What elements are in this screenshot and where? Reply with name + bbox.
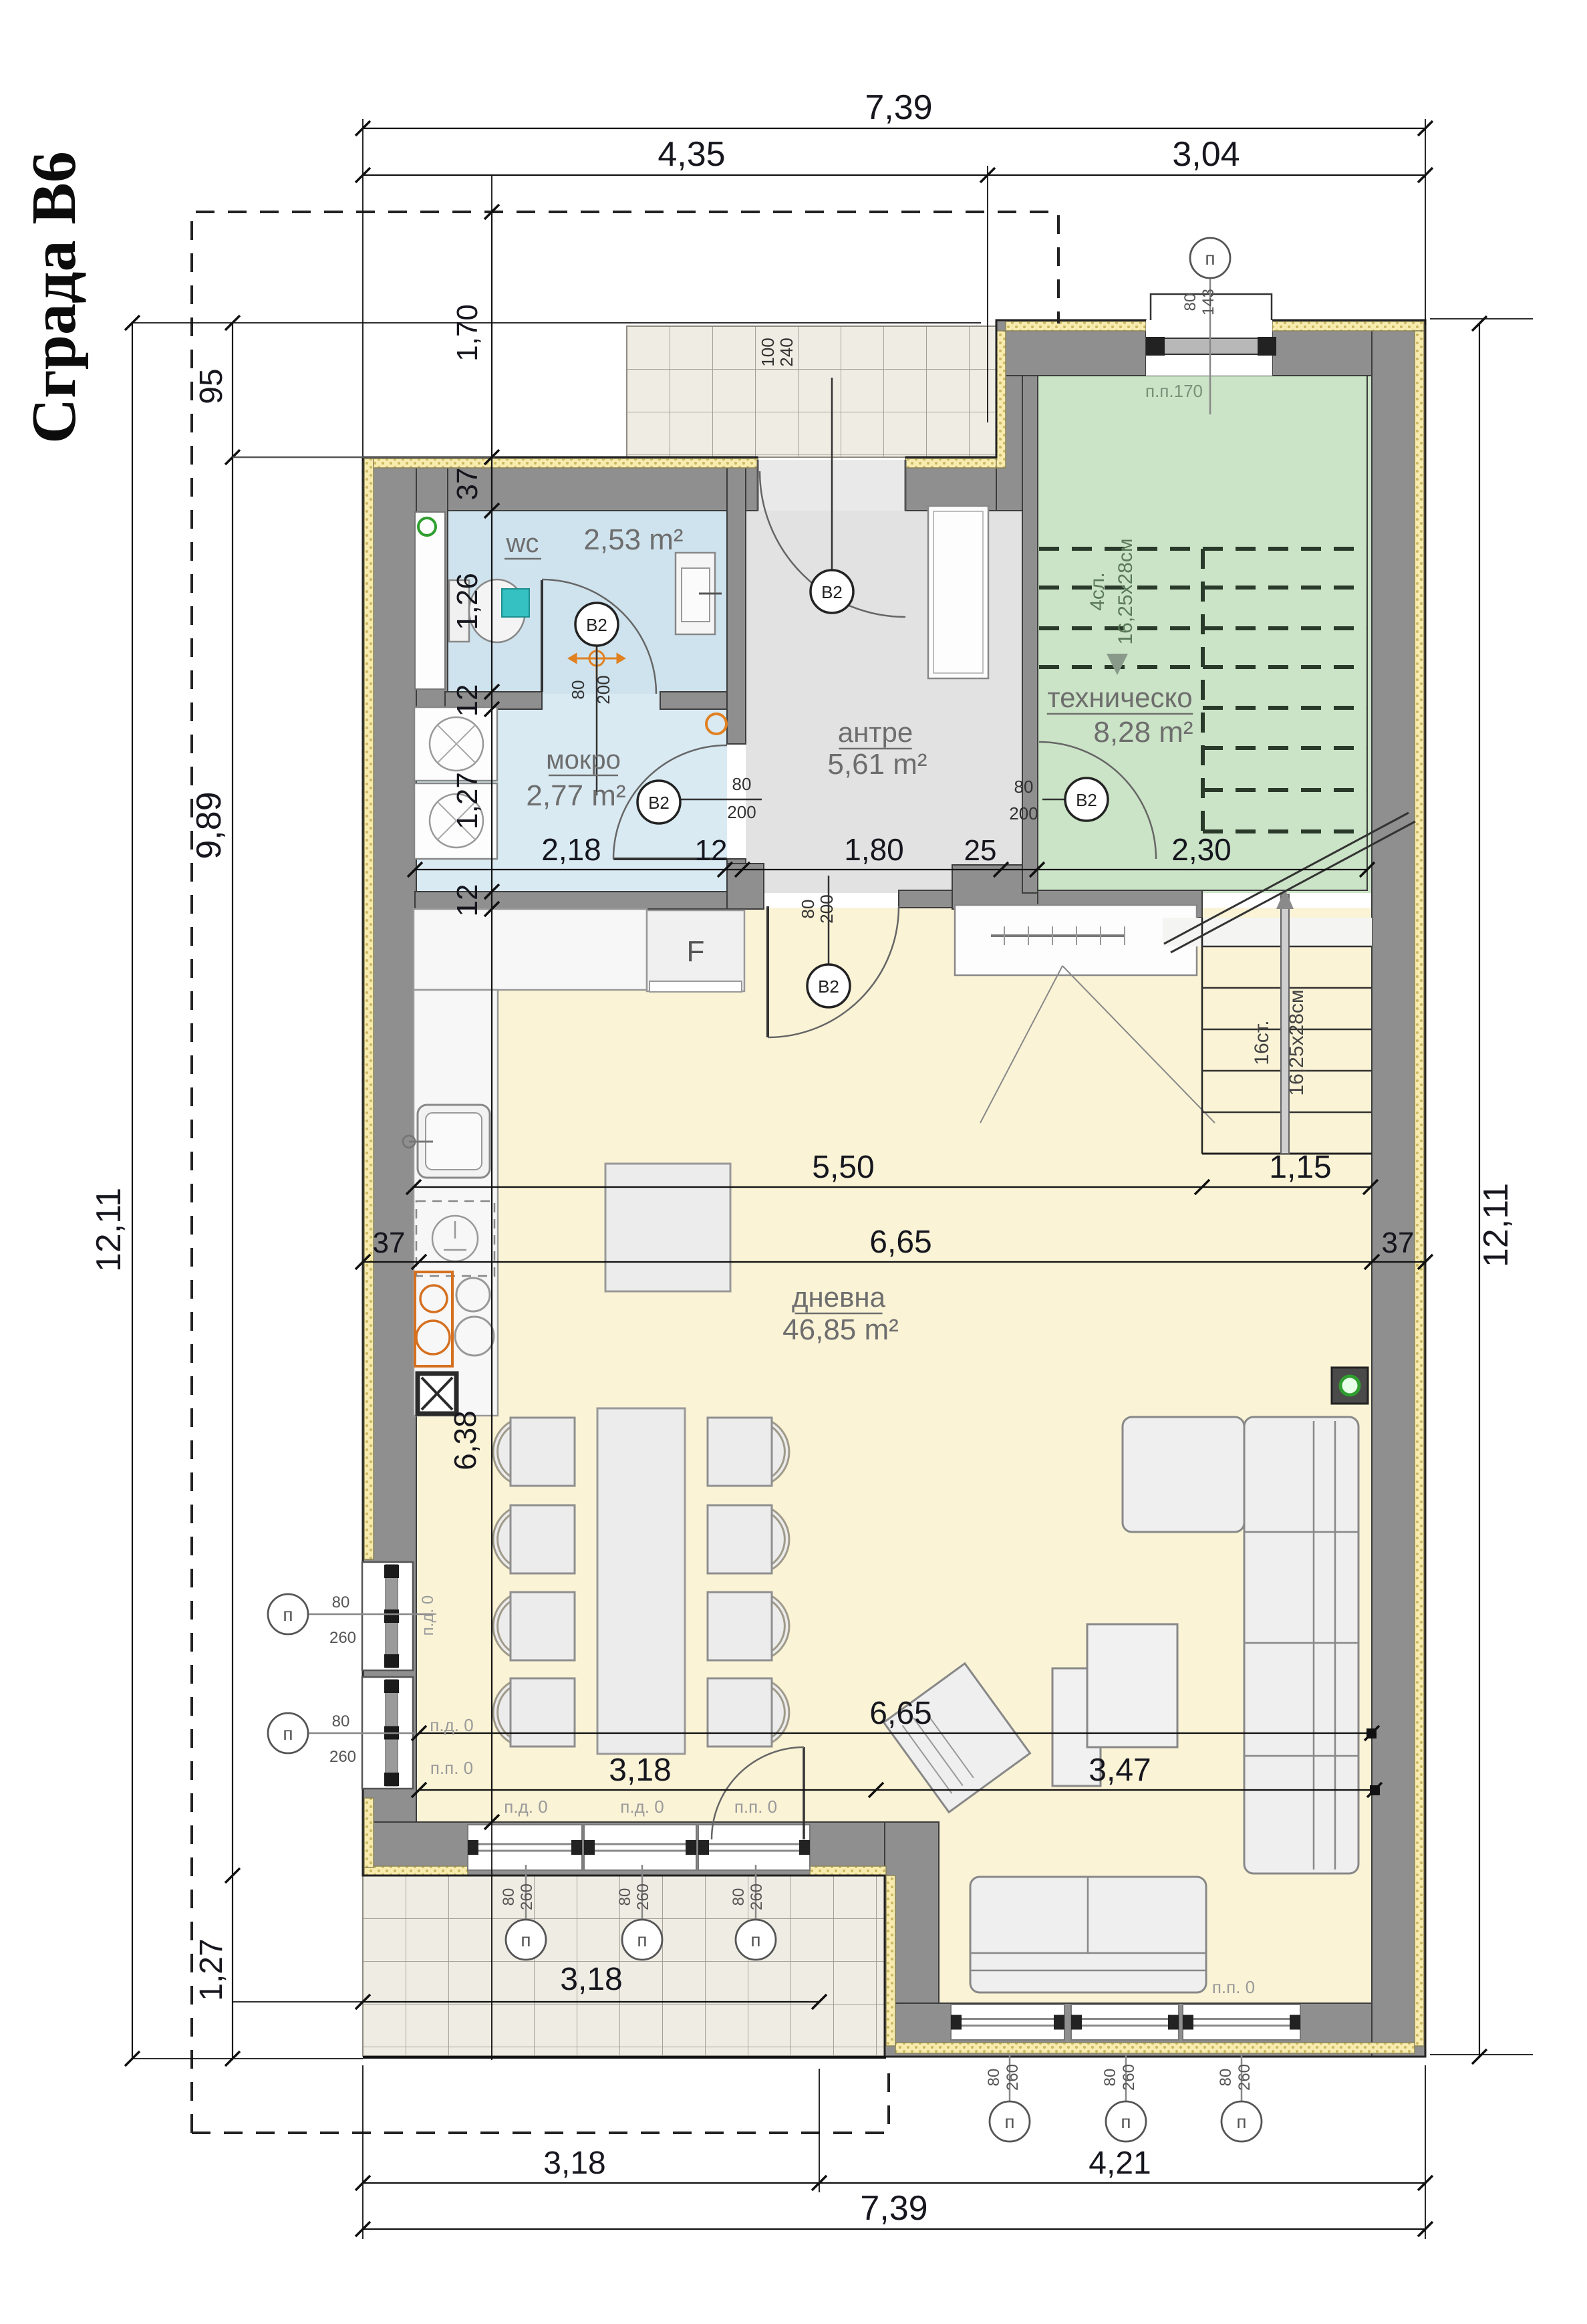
svg-text:1,70: 1,70 — [451, 304, 484, 362]
svg-text:80: 80 — [730, 1888, 748, 1906]
svg-text:37: 37 — [451, 468, 484, 501]
svg-text:260: 260 — [1120, 2064, 1138, 2091]
svg-text:п: п — [1205, 248, 1215, 269]
svg-text:Сграда В6: Сграда В6 — [19, 151, 89, 444]
svg-text:п: п — [283, 1723, 293, 1744]
svg-text:7,39: 7,39 — [865, 88, 932, 127]
svg-text:п: п — [1236, 2111, 1246, 2132]
svg-text:2,53 m²: 2,53 m² — [583, 523, 683, 556]
svg-text:260: 260 — [518, 1884, 536, 1910]
svg-text:16,25х28см: 16,25х28см — [1115, 538, 1137, 644]
svg-text:мокро: мокро — [546, 745, 621, 775]
svg-text:95: 95 — [194, 368, 229, 404]
svg-text:В2: В2 — [586, 615, 607, 635]
svg-text:п.д. 0: п.д. 0 — [430, 1715, 473, 1735]
svg-text:37: 37 — [373, 1226, 406, 1259]
svg-text:200: 200 — [1009, 803, 1038, 823]
svg-text:7,39: 7,39 — [860, 2189, 927, 2228]
svg-text:260: 260 — [1236, 2064, 1254, 2091]
svg-text:2,77 m²: 2,77 m² — [526, 779, 625, 812]
svg-text:1,26: 1,26 — [451, 573, 484, 630]
svg-text:240: 240 — [776, 338, 797, 366]
svg-text:техническо: техническо — [1047, 682, 1192, 713]
svg-text:3,47: 3,47 — [1089, 1753, 1151, 1788]
svg-text:1,27: 1,27 — [194, 1938, 229, 2000]
svg-text:п.д. 0: п.д. 0 — [419, 1595, 437, 1636]
svg-text:4,21: 4,21 — [1089, 2146, 1151, 2181]
svg-text:46,85 m²: 46,85 m² — [782, 1313, 899, 1346]
svg-text:80: 80 — [1014, 777, 1034, 797]
svg-text:3,18: 3,18 — [609, 1753, 671, 1788]
svg-text:6,65: 6,65 — [869, 1224, 931, 1260]
svg-text:2,30: 2,30 — [1171, 832, 1232, 867]
svg-text:3,04: 3,04 — [1172, 135, 1240, 174]
svg-text:80: 80 — [616, 1888, 634, 1906]
svg-text:200: 200 — [817, 894, 837, 923]
svg-text:В2: В2 — [1076, 790, 1097, 810]
svg-text:12,11: 12,11 — [1477, 1183, 1516, 1267]
svg-text:260: 260 — [329, 1748, 356, 1766]
svg-text:2,18: 2,18 — [541, 832, 601, 867]
svg-text:п.д. 0: п.д. 0 — [620, 1797, 664, 1817]
svg-text:п.п.170: п.п.170 — [1145, 381, 1203, 401]
svg-text:80: 80 — [1101, 2069, 1119, 2087]
svg-text:п.д. 0: п.д. 0 — [504, 1797, 547, 1817]
svg-text:12,11: 12,11 — [90, 1188, 128, 1272]
svg-text:80: 80 — [568, 680, 588, 700]
svg-text:80: 80 — [732, 774, 752, 794]
svg-text:п.п. 0: п.п. 0 — [734, 1797, 777, 1817]
svg-text:8,28 m²: 8,28 m² — [1093, 716, 1193, 749]
svg-text:п: п — [1004, 2111, 1014, 2132]
svg-text:16,25х28см: 16,25х28см — [1286, 989, 1308, 1095]
svg-text:6,38: 6,38 — [448, 1410, 482, 1470]
svg-text:80: 80 — [1181, 293, 1199, 311]
svg-text:В2: В2 — [648, 793, 670, 813]
svg-text:антре: антре — [838, 717, 913, 748]
svg-text:80: 80 — [1217, 2069, 1235, 2087]
svg-text:16ст.: 16ст. — [1251, 1020, 1273, 1065]
svg-text:п.п. 0: п.п. 0 — [1212, 1977, 1255, 1997]
svg-text:1,15: 1,15 — [1269, 1150, 1331, 1185]
svg-text:80: 80 — [332, 1712, 350, 1730]
svg-text:wc: wc — [506, 529, 539, 558]
svg-text:12: 12 — [695, 834, 728, 867]
svg-text:9,89: 9,89 — [190, 791, 229, 859]
svg-text:80: 80 — [798, 900, 818, 919]
svg-text:1,27: 1,27 — [451, 772, 484, 829]
svg-text:п: п — [637, 1930, 647, 1950]
svg-text:260: 260 — [634, 1884, 652, 1910]
svg-text:В2: В2 — [821, 582, 843, 602]
svg-text:3,18: 3,18 — [560, 1962, 622, 1997]
svg-text:4сл.: 4сл. — [1087, 572, 1109, 611]
svg-text:В2: В2 — [818, 977, 839, 997]
svg-text:F: F — [687, 935, 705, 968]
svg-text:12: 12 — [451, 884, 484, 917]
svg-text:37: 37 — [1382, 1226, 1415, 1259]
svg-text:260: 260 — [329, 1629, 356, 1647]
svg-text:25: 25 — [964, 834, 997, 867]
svg-text:дневна: дневна — [792, 1281, 886, 1313]
svg-text:5,61 m²: 5,61 m² — [827, 748, 927, 781]
svg-text:80: 80 — [332, 1593, 350, 1611]
svg-text:260: 260 — [748, 1884, 766, 1910]
svg-text:200: 200 — [727, 802, 756, 822]
svg-text:4,35: 4,35 — [658, 135, 725, 174]
svg-text:260: 260 — [1004, 2064, 1022, 2091]
svg-text:п: п — [521, 1930, 531, 1950]
svg-text:п: п — [1121, 2111, 1131, 2132]
svg-text:80: 80 — [985, 2069, 1003, 2087]
svg-text:200: 200 — [593, 675, 613, 704]
svg-text:5,50: 5,50 — [812, 1150, 874, 1185]
svg-text:143: 143 — [1199, 289, 1217, 315]
svg-text:100: 100 — [758, 338, 778, 366]
svg-text:6,65: 6,65 — [869, 1696, 931, 1731]
svg-text:п: п — [750, 1930, 760, 1950]
svg-text:80: 80 — [500, 1888, 518, 1906]
svg-text:п.п. 0: п.п. 0 — [430, 1758, 473, 1778]
svg-text:12: 12 — [451, 684, 484, 717]
svg-text:1,80: 1,80 — [844, 832, 904, 867]
svg-text:3,18: 3,18 — [543, 2146, 605, 2181]
svg-text:п: п — [283, 1604, 293, 1625]
